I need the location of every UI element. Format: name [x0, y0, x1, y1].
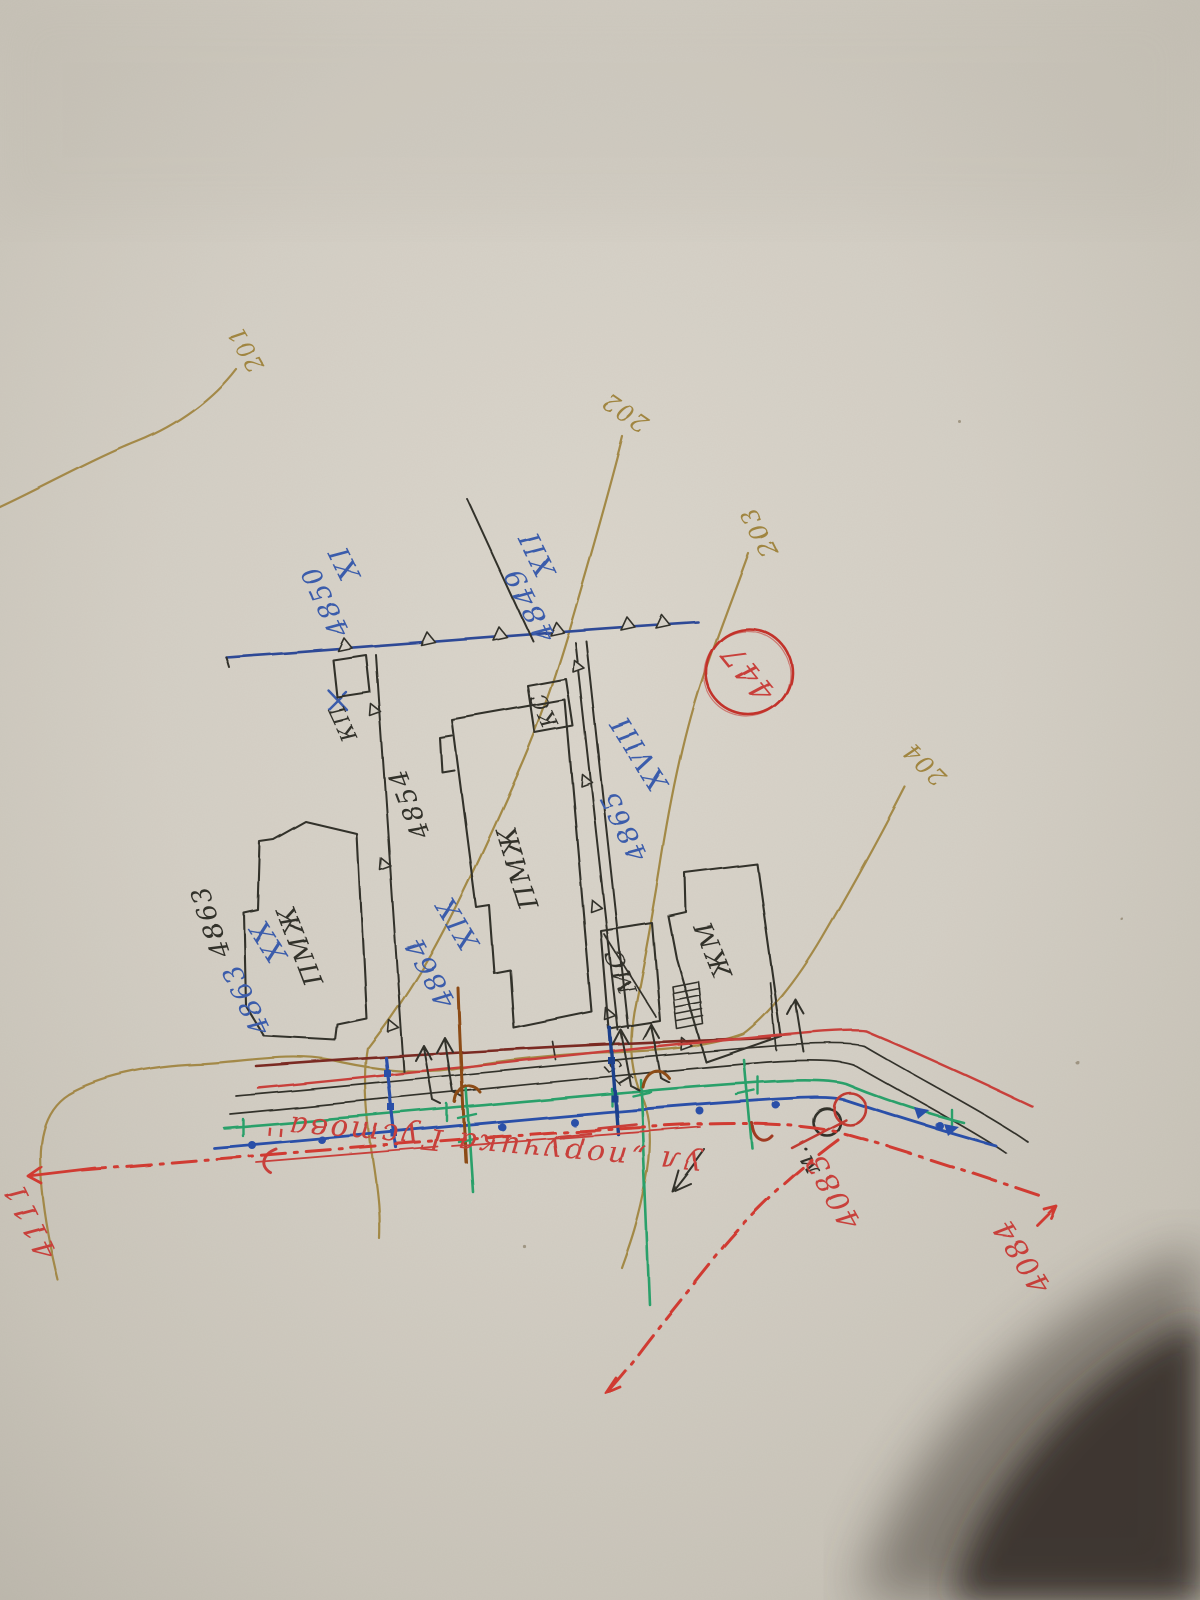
- site-plan-canvas: 201 202 203 204: [0, 0, 1200, 1600]
- top-edge-shading: [0, 0, 1200, 220]
- photographed-site-plan: 201 202 203 204: [0, 0, 1200, 1600]
